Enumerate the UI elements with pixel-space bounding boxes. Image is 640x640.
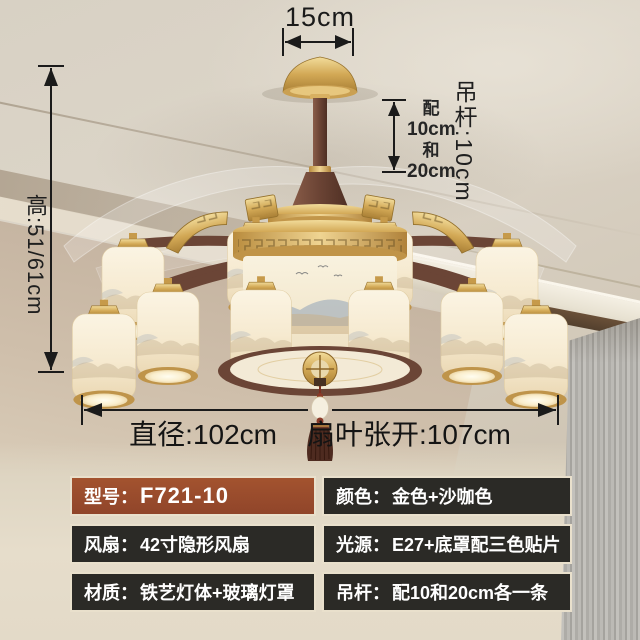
spec-value: F721-10 — [140, 483, 229, 509]
spec-value: E27+底罩配三色贴片 — [392, 531, 561, 557]
spec-cell-light-source: 光源： E27+底罩配三色贴片 — [322, 524, 572, 564]
spec-cell-model: 型号： F721-10 — [70, 476, 316, 516]
canopy-and-rod — [262, 57, 378, 236]
spec-cell-fan: 风扇： 42寸隐形风扇 — [70, 524, 316, 564]
rod-length-arrow — [380, 96, 408, 176]
spec-cell-color: 颜色： 金色+沙咖色 — [322, 476, 572, 516]
spec-label: 风扇： — [84, 531, 138, 557]
spec-cell-rod: 吊杆： 配10和20cm各一条 — [322, 572, 572, 612]
spec-label: 颜色： — [336, 483, 390, 509]
spec-value: 配10和20cm各一条 — [392, 579, 548, 605]
spec-label: 型号： — [84, 483, 138, 509]
spec-value: 金色+沙咖色 — [392, 483, 493, 509]
spec-label: 材质： — [84, 579, 138, 605]
product-image: 15cm 配 10cm 和 20cm 吊杆:10cm 高:51/61cm 直径:… — [0, 0, 640, 640]
rod-length-label: 吊杆:10cm — [447, 80, 481, 205]
blade-span-label: 扇叶张开:107cm — [307, 413, 511, 453]
height-dimension-label: 高:51/61cm — [19, 194, 51, 322]
spec-label: 吊杆： — [336, 579, 390, 605]
spec-table: 型号： F721-10 颜色： 金色+沙咖色 风扇： 42寸隐形风扇 光源： E… — [70, 476, 572, 612]
diameter-label: 直径:102cm — [129, 413, 277, 453]
spec-value: 42寸隐形风扇 — [140, 531, 250, 557]
spec-cell-material: 材质： 铁艺灯体+玻璃灯罩 — [70, 572, 316, 612]
canopy-width-arrow — [270, 24, 370, 60]
spec-value: 铁艺灯体+玻璃灯罩 — [140, 579, 295, 605]
spec-label: 光源： — [336, 531, 390, 557]
bottom-dimension-label: 直径:102cm 扇叶张开:107cm — [80, 413, 560, 453]
